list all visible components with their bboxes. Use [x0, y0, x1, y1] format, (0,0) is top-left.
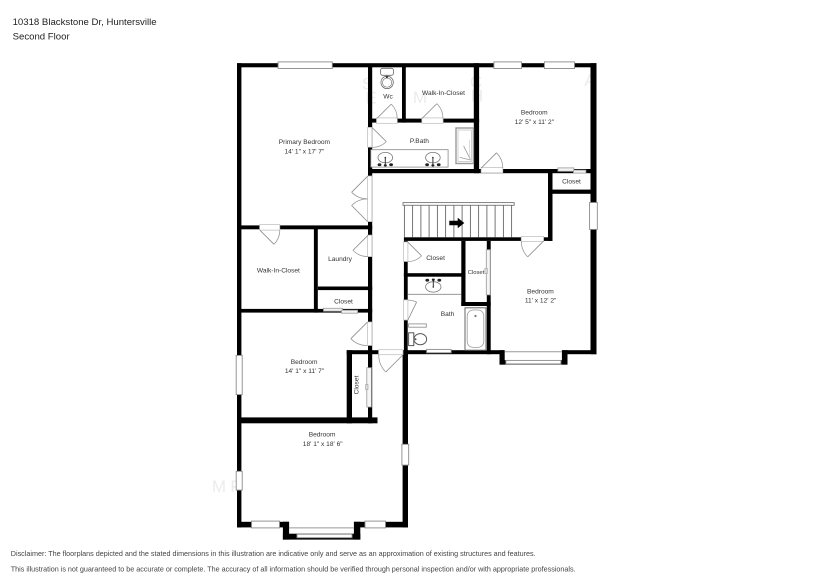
svg-text:Closet: Closet — [468, 270, 485, 276]
svg-text:Walk-In-Closet: Walk-In-Closet — [257, 268, 300, 275]
svg-text:Bedroom: Bedroom — [527, 288, 554, 295]
svg-text:11' x 12' 2": 11' x 12' 2" — [525, 297, 557, 304]
svg-text:10318 Blackstone Dr, Huntersvi: 10318 Blackstone Dr, Huntersville — [13, 17, 157, 28]
svg-text:Closet: Closet — [426, 255, 445, 262]
svg-text:Walk-In-Closet: Walk-In-Closet — [422, 90, 465, 97]
svg-text:14' 1" x 17' 7": 14' 1" x 17' 7" — [284, 149, 324, 156]
svg-text:12' 5" x 11' 2": 12' 5" x 11' 2" — [515, 119, 555, 126]
svg-text:Bath: Bath — [441, 311, 455, 318]
svg-text:P.Bath: P.Bath — [410, 138, 429, 145]
svg-text:Bedroom: Bedroom — [309, 431, 336, 438]
svg-text:This illustration is not guara: This illustration is not guaranteed to b… — [11, 564, 576, 573]
svg-text:Closet: Closet — [334, 299, 353, 306]
svg-text:14' 1" x 11' 7": 14' 1" x 11' 7" — [285, 368, 325, 375]
svg-text:Bedroom: Bedroom — [521, 110, 548, 117]
svg-text:Primary Bedroom: Primary Bedroom — [279, 139, 331, 146]
svg-text:Second Floor: Second Floor — [13, 32, 71, 43]
svg-text:Bedroom: Bedroom — [291, 359, 318, 366]
svg-text:Disclaimer: The floorplans dep: Disclaimer: The floorplans depicted and … — [11, 549, 536, 558]
svg-text:Wc: Wc — [383, 93, 393, 100]
svg-text:Closet: Closet — [353, 375, 360, 394]
svg-text:M: M — [212, 477, 226, 496]
svg-text:Closet: Closet — [562, 178, 581, 185]
svg-text:18' 1" x 18' 6": 18' 1" x 18' 6" — [303, 441, 343, 448]
svg-text:Laundry: Laundry — [328, 256, 353, 263]
